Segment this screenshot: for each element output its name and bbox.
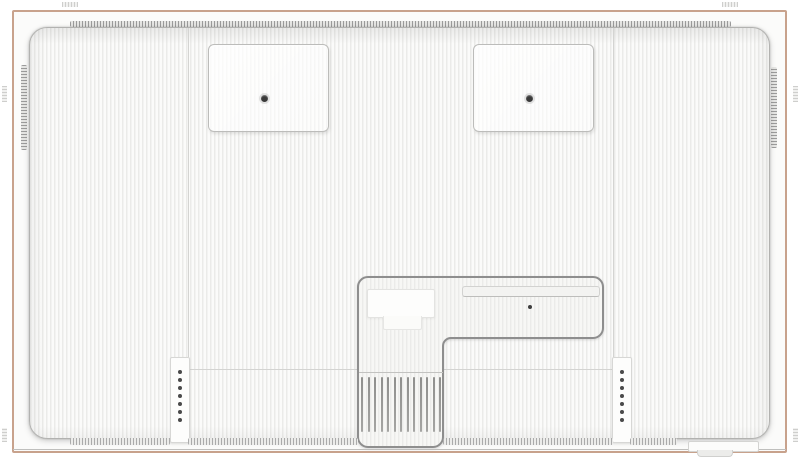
screw-hole [620, 394, 624, 398]
frame-edge-vent-tick [2, 86, 7, 102]
screw-hole [178, 418, 182, 422]
bottom-tab [697, 450, 733, 457]
screw-hole [178, 402, 182, 406]
screw-hole [178, 370, 182, 374]
screw-hole [526, 95, 533, 102]
screw-hole [178, 394, 182, 398]
frame-edge-vent-tick [722, 2, 738, 7]
bottom-edge-line [13, 449, 786, 450]
bottom-vent-grille [443, 438, 613, 445]
vent-slat [400, 377, 402, 432]
vent-slat [361, 377, 363, 432]
left-vent-grille [21, 65, 27, 150]
rating-label-plate [367, 289, 435, 318]
tv-rear-view [0, 0, 800, 469]
screw-hole [620, 410, 624, 414]
screw-hole [620, 418, 624, 422]
screw-hole [178, 378, 182, 382]
vent-slat [439, 377, 441, 432]
connector-slot [462, 286, 600, 297]
panel-seam-horizontal-left [188, 369, 358, 370]
bottom-vent-slats [361, 377, 441, 432]
screw-hole [620, 370, 624, 374]
panel-seam-vertical-left [188, 28, 189, 357]
vent-slat [387, 377, 389, 432]
vent-slat [407, 377, 409, 432]
bottom-vent-grille [630, 438, 677, 445]
frame-edge-vent-tick [62, 2, 78, 7]
screw-hole [528, 305, 532, 309]
screw-hole [620, 386, 624, 390]
bottom-vent-grille [70, 438, 170, 445]
screw-hole [620, 378, 624, 382]
screw-hole [178, 386, 182, 390]
vent-slat [433, 377, 435, 432]
vent-slat [368, 377, 370, 432]
frame-edge-vent-tick [793, 428, 798, 442]
screw-hole [178, 410, 182, 414]
panel-seam-vertical-right [613, 28, 614, 357]
vent-slat [394, 377, 396, 432]
vent-slat [420, 377, 422, 432]
right-vent-grille [771, 67, 777, 148]
frame-edge-vent-tick [2, 428, 7, 442]
screw-strip-left [170, 357, 190, 443]
vesa-mount-right [473, 44, 594, 132]
vent-slat [381, 377, 383, 432]
screw-hole [620, 402, 624, 406]
vent-slat [426, 377, 428, 432]
screw-hole [261, 95, 268, 102]
channel-seam [359, 372, 443, 373]
vent-slat [374, 377, 376, 432]
vent-slat [413, 377, 415, 432]
bottom-vent-grille [188, 438, 358, 445]
small-label-plate [383, 316, 422, 330]
vesa-mount-left [208, 44, 329, 132]
screw-strip-right [612, 357, 632, 443]
frame-edge-vent-tick [793, 86, 798, 102]
